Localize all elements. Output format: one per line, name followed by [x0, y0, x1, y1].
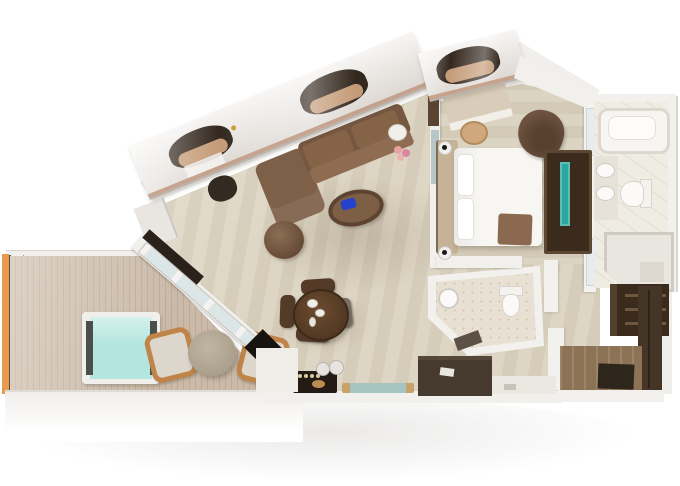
carafe — [309, 317, 316, 327]
flower-bouquet — [392, 144, 414, 162]
door-end-wall — [256, 348, 298, 392]
side-table — [388, 124, 407, 141]
bottle — [304, 374, 308, 378]
bathroom-sink — [596, 163, 615, 178]
pillow — [457, 154, 474, 196]
bathroom-toilet — [620, 181, 644, 207]
glass-dome — [329, 360, 344, 375]
entry-door-mat — [598, 363, 635, 389]
swivel-chair — [264, 221, 304, 259]
glass-display-case — [342, 383, 414, 393]
bottle — [298, 374, 302, 378]
hot-tub-water — [90, 317, 152, 379]
wardrobe-divider — [648, 290, 650, 388]
dining-table — [293, 289, 349, 341]
bathtub-basin — [608, 116, 656, 140]
bedside-lamp — [438, 141, 452, 155]
plate — [307, 299, 318, 308]
powder-room-toilet-bowl — [502, 294, 520, 317]
hall-counter — [492, 376, 556, 394]
luggage-bench — [418, 356, 492, 396]
counter-item — [504, 384, 516, 390]
balcony-orange-trim — [2, 254, 9, 394]
plate — [315, 309, 325, 317]
hot-tub-side-panel — [86, 321, 93, 375]
powder-room-sink — [438, 288, 459, 309]
hall-wall-stub — [544, 260, 558, 312]
balcony-outer-ledge — [5, 390, 303, 442]
flower — [394, 146, 402, 154]
bedside-lamp — [438, 246, 452, 260]
shower-bench — [640, 262, 664, 282]
flower — [397, 154, 404, 161]
bed-throw-blanket — [497, 213, 532, 245]
entry-threshold — [558, 390, 664, 402]
pillow — [457, 198, 474, 240]
bottle — [310, 374, 314, 378]
bathroom-sink — [596, 186, 615, 201]
floor-plan-render — [0, 0, 680, 486]
glass-dome — [316, 362, 330, 376]
vanity-stool — [460, 121, 488, 145]
tv-screen — [560, 162, 570, 226]
gold-tray — [312, 380, 325, 388]
